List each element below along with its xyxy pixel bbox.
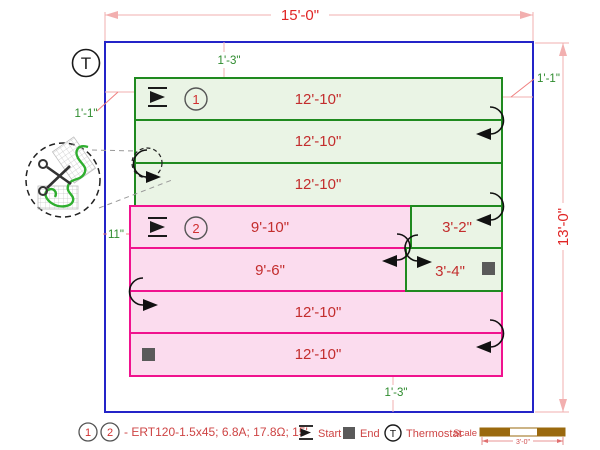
legend: 1 2 - ERT120-1.5x45; 6.8A; 17.8Ω; 15' St… bbox=[79, 423, 565, 446]
offset-left-mid: 11" bbox=[103, 229, 131, 241]
legend-mat1-badge: 1 bbox=[79, 423, 97, 441]
mat2-row3-length: 12'-10" bbox=[295, 304, 342, 321]
end-marker-mat1 bbox=[482, 262, 495, 275]
legend-start-label: Start bbox=[318, 428, 341, 440]
offset-left-mid-label: 11" bbox=[108, 229, 124, 241]
offset-top: 1'-3" bbox=[218, 42, 241, 78]
room-height-label: 13'-0" bbox=[555, 208, 572, 246]
thermostat-icon: T bbox=[73, 50, 100, 77]
legend-mat1-number: 1 bbox=[85, 427, 91, 439]
offset-bottom: 1'-3" bbox=[385, 376, 408, 412]
offset-left-label: 1'-1" bbox=[75, 108, 98, 120]
room-width-label: 15'-0" bbox=[281, 7, 319, 24]
end-marker-mat2 bbox=[142, 348, 155, 361]
legend-end-marker-icon bbox=[343, 427, 355, 439]
mat2-row1-length: 9'-10" bbox=[251, 219, 289, 236]
mat1-row3-length: 12'-10" bbox=[295, 176, 342, 193]
mat2-row4-length: 12'-10" bbox=[295, 346, 342, 363]
legend-mat2-number: 2 bbox=[107, 427, 113, 439]
offset-right-label: 1'-1" bbox=[537, 73, 560, 85]
legend-scale-label: Scale bbox=[453, 428, 477, 439]
offset-bottom-label: 1'-3" bbox=[385, 387, 408, 399]
mat1-row5-length: 3'-4" bbox=[435, 263, 465, 280]
thermostat-symbol-label: T bbox=[81, 54, 91, 73]
mat2-number: 2 bbox=[192, 221, 199, 236]
floor-heating-plan: 15'-0" 13'-0" 1'-3" 1'-1" 1'-1" 11" 1'-3… bbox=[0, 0, 600, 450]
plan-drawing: 15'-0" 13'-0" 1'-3" 1'-1" 1'-1" 11" 1'-3… bbox=[0, 0, 600, 450]
legend-thermostat-symbol: T bbox=[390, 428, 397, 440]
legend-spec: - ERT120-1.5x45; 6.8A; 17.8Ω; 15' bbox=[124, 425, 308, 439]
scale-bar-length: 3'-0" bbox=[516, 439, 530, 446]
mat2-row2-length: 9'-6" bbox=[255, 262, 285, 279]
legend-thermostat-icon: T bbox=[385, 425, 401, 441]
scale-bar: 3'-0" bbox=[480, 428, 565, 446]
legend-end-label: End bbox=[360, 428, 380, 440]
legend-mat2-badge: 2 bbox=[101, 423, 119, 441]
mat1-number: 1 bbox=[192, 92, 199, 107]
offset-right: 1'-1" bbox=[502, 73, 560, 97]
mat1-row1-length: 12'-10" bbox=[295, 91, 342, 108]
offset-top-label: 1'-3" bbox=[218, 55, 241, 67]
mat1-row2-length: 12'-10" bbox=[295, 133, 342, 150]
mat1-row4-length: 3'-2" bbox=[442, 219, 472, 236]
